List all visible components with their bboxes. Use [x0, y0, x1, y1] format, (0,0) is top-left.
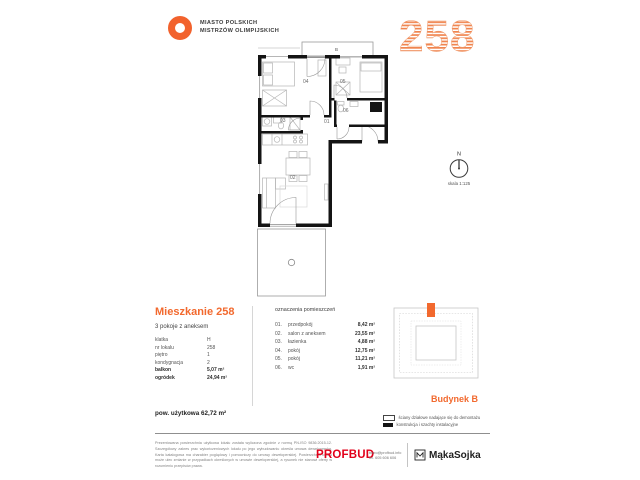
detail-value: 258: [207, 345, 215, 353]
balcony-label: B: [335, 47, 338, 52]
detail-row: kondygnacja2: [155, 360, 250, 368]
room-row: 01.przedpokój8,42 m²: [275, 321, 375, 330]
detail-label: piętro: [155, 352, 207, 360]
room-label-05: 05: [340, 79, 346, 85]
legend-label: ściany działowe nadające się do demontaż…: [399, 415, 481, 420]
detail-row: nr lokalu258: [155, 345, 250, 353]
room-area: 8,42 m²: [341, 321, 375, 330]
room-area: 11,21 m²: [341, 355, 375, 364]
detail-row: piętro1: [155, 352, 250, 360]
developer-contact: biuro@profbud.info tel. 605 606 606: [369, 451, 401, 462]
column-divider: [252, 306, 253, 406]
contact-phone: tel. 605 606 606: [369, 456, 401, 461]
detail-label: kondygnacja: [155, 360, 207, 368]
unit-location-highlight: [427, 303, 435, 317]
room-name: wc: [288, 364, 341, 373]
apartment-title: Mieszkanie 258: [155, 306, 235, 318]
building-key-plan: [390, 300, 485, 392]
detail-row: balkon5,07 m²: [155, 367, 250, 375]
removable-wall-swatch-icon: [383, 415, 395, 421]
brand-line2: MISTRZÓW OLIMPIJSKICH: [200, 28, 279, 36]
room-label-04: 04: [303, 79, 309, 85]
architect-logo: MąkaSojka: [429, 450, 481, 461]
unit-number-art: 258: [401, 15, 493, 55]
rooms-heading: oznaczenia pomieszczeń: [275, 307, 335, 313]
room-name: salon z aneksem: [288, 330, 341, 339]
detail-value: 2: [207, 360, 210, 368]
room-name: pokój: [288, 347, 341, 356]
apartment-subtitle: 3 pokoje z aneksem: [155, 324, 208, 330]
installation-shaft: [370, 102, 382, 112]
room-label-03: 03: [280, 118, 286, 124]
detail-value: 1: [207, 352, 210, 360]
brand-text: MIASTO POLSKICH MISTRZÓW OLIMPIJSKICH: [200, 20, 279, 35]
detail-label: nr lokalu: [155, 345, 207, 353]
north-compass-icon: N skala 1:125: [444, 147, 480, 192]
legal-disclaimer: Prezentowana powierzchnia użytkowa lokal…: [155, 441, 332, 470]
rooms-list: 01.przedpokój8,42 m² 02.salon z aneksem2…: [275, 321, 375, 373]
room-number: 05.: [275, 355, 288, 364]
scale-label: skala 1:125: [448, 181, 471, 186]
detail-label: klatka: [155, 337, 207, 345]
room-row: 06.wc1,91 m²: [275, 364, 375, 373]
plan-outdoor: [258, 42, 374, 296]
makasojka-logo-icon: [414, 449, 426, 461]
room-number: 02.: [275, 330, 288, 339]
developer-logo: PROFBUD: [316, 449, 374, 461]
usable-area-label: pow. użytkowa: [155, 410, 199, 417]
room-area: 12,75 m²: [341, 347, 375, 356]
room-label-01: 01: [324, 119, 330, 125]
room-name: łazienka: [288, 338, 341, 347]
detail-label: balkon: [155, 367, 207, 375]
room-number: 01.: [275, 321, 288, 330]
brand-logo-icon: [168, 16, 192, 40]
room-name: przedpokój: [288, 321, 341, 330]
room-number: 04.: [275, 347, 288, 356]
room-area: 1,91 m²: [341, 364, 375, 373]
room-number: 06.: [275, 364, 288, 373]
room-label-06: 06: [343, 108, 349, 114]
floor-plan: B 04 05 03 01 06 02: [250, 38, 395, 300]
unit-number: 258: [399, 12, 475, 61]
room-name: pokój: [288, 355, 341, 364]
brand-line1: MIASTO POLSKICH: [200, 20, 279, 28]
plan-walls: [258, 55, 388, 227]
structural-wall-swatch-icon: [383, 423, 393, 427]
room-label-02: 02: [290, 175, 296, 181]
room-row: 02.salon z aneksem23,55 m²: [275, 330, 375, 339]
detail-label: ogródek: [155, 375, 207, 383]
room-number: 03.: [275, 338, 288, 347]
detail-row: ogródek24,94 m²: [155, 375, 250, 383]
compass-north-label: N: [457, 152, 461, 158]
apartment-card: MIASTO POLSKICH MISTRZÓW OLIMPIJSKICH 25…: [0, 0, 640, 480]
apartment-details-table: klatkaH nr lokalu258 piętro1 kondygnacja…: [155, 337, 250, 383]
garden-drain-icon: [288, 259, 294, 265]
legend-row: ściany działowe nadające się do demontaż…: [383, 414, 480, 421]
detail-value: 24,94 m²: [207, 375, 227, 383]
footer-divider: [155, 433, 490, 434]
footer-vertical-divider: [407, 443, 408, 467]
legend-row: konstrukcja i szachty instalacyjne: [383, 421, 480, 428]
room-area: 4,88 m²: [341, 338, 375, 347]
usable-area: pow. użytkowa 62,72 m²: [155, 410, 226, 417]
room-area: 23,55 m²: [341, 330, 375, 339]
legend-label: konstrukcja i szachty instalacyjne: [397, 422, 459, 427]
legend: ściany działowe nadające się do demontaż…: [383, 414, 480, 428]
usable-area-value: 62,72 m²: [201, 410, 226, 417]
room-row: 04.pokój12,75 m²: [275, 347, 375, 356]
detail-row: klatkaH: [155, 337, 250, 345]
room-row: 05.pokój11,21 m²: [275, 355, 375, 364]
building-label: Budynek B: [388, 394, 478, 404]
plan-room-labels: B 04 05 03 01 06 02: [280, 47, 349, 181]
detail-value: 5,07 m²: [207, 367, 224, 375]
detail-value: H: [207, 337, 211, 345]
room-row: 03.łazienka4,88 m²: [275, 338, 375, 347]
